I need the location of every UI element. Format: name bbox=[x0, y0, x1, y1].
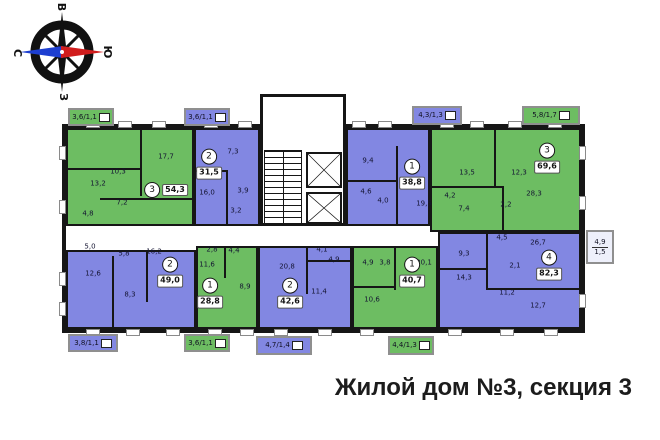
room-area-label: 2,1 bbox=[509, 263, 520, 270]
interior-wall bbox=[352, 286, 396, 288]
room-area-label: 3,2 bbox=[230, 208, 241, 215]
apartment-label: 140,7 bbox=[399, 257, 425, 288]
room-area-label: 4,9 bbox=[328, 257, 339, 264]
window-opening bbox=[508, 121, 522, 128]
window-opening bbox=[59, 302, 66, 316]
room-area-label: 9,3 bbox=[458, 251, 469, 258]
apartment-label: 231,5 bbox=[196, 149, 222, 180]
interior-wall bbox=[112, 256, 114, 329]
room-area-label: 17,7 bbox=[158, 154, 174, 161]
room-area-label: 19,5 bbox=[416, 201, 432, 208]
balcony: 4,4/1,3 bbox=[388, 336, 434, 355]
room-area-label: 4,6 bbox=[360, 189, 371, 196]
staircase bbox=[264, 150, 302, 224]
balcony-area-label: 4,4/1,3 bbox=[392, 342, 417, 349]
balcony-area-label: 3,8/1,1 bbox=[74, 340, 99, 347]
apartment-label: 249,0 bbox=[157, 257, 183, 288]
compass-rose-icon: В С Ю З bbox=[12, 2, 112, 102]
apartment-total-area: 31,5 bbox=[196, 167, 222, 180]
window-opening bbox=[579, 294, 586, 308]
apartment-label: 128,8 bbox=[197, 278, 223, 309]
room-area-label: 12,7 bbox=[530, 303, 546, 310]
apartment-rooms-badge: 1 bbox=[404, 159, 420, 175]
window-opening bbox=[59, 272, 66, 286]
window-opening bbox=[118, 121, 132, 128]
apartment-total-area: 69,6 bbox=[534, 161, 560, 174]
room-area-label: 5,0 bbox=[84, 244, 95, 251]
balcony-area-label: 4,7/1,4 bbox=[265, 342, 290, 349]
room-area-label: 2,2 bbox=[500, 202, 511, 209]
balcony-area-label: 4,3/1,3 bbox=[418, 112, 443, 119]
balcony: 3,6/1,1 bbox=[184, 108, 230, 126]
apartment-total-area: 38,8 bbox=[399, 177, 425, 190]
room-area-label: 4,4 bbox=[228, 248, 239, 255]
compass-needle-red bbox=[61, 46, 104, 58]
window-opening bbox=[579, 146, 586, 160]
room-area-label: 20,8 bbox=[279, 264, 295, 271]
room-area-label: 7,4 bbox=[458, 206, 469, 213]
room-area-label: 16,0 bbox=[199, 190, 215, 197]
compass-label-right: Ю bbox=[101, 46, 112, 59]
balcony-window-icon bbox=[559, 111, 570, 120]
plan-title: Жилой дом №3, секция 3 bbox=[335, 374, 632, 402]
compass-label-bottom: З bbox=[57, 93, 70, 101]
window-opening bbox=[274, 329, 288, 336]
apartment-label: 354,3 bbox=[144, 182, 188, 198]
room-area-label: 4,1 bbox=[316, 247, 327, 254]
room-area-label: 12,6 bbox=[85, 271, 101, 278]
interior-wall bbox=[396, 146, 398, 226]
balcony-window-icon bbox=[101, 339, 112, 348]
window-opening bbox=[579, 196, 586, 210]
apartment-rooms-badge: 4 bbox=[541, 250, 557, 266]
balcony-side: 4,91,5 bbox=[586, 230, 614, 264]
apartment-label: 482,3 bbox=[536, 250, 562, 281]
balcony-area-label: 3,6/1,1 bbox=[188, 114, 213, 121]
balcony: 4,3/1,3 bbox=[412, 106, 462, 125]
balcony: 3,8/1,1 bbox=[68, 334, 118, 352]
balcony-window-icon bbox=[419, 341, 430, 350]
room-area-label: 3,8 bbox=[379, 260, 390, 267]
apartment-rooms-badge: 3 bbox=[144, 182, 160, 198]
apartment-rooms-badge: 1 bbox=[404, 257, 420, 273]
apartment-total-area: 40,7 bbox=[399, 275, 425, 288]
interior-wall bbox=[486, 232, 488, 290]
room-area-label: 2,8 bbox=[206, 247, 217, 254]
interior-wall bbox=[224, 246, 226, 278]
compass-center-dot bbox=[60, 50, 64, 54]
compass-south-point bbox=[58, 52, 66, 92]
room-area-label: 9,4 bbox=[362, 158, 373, 165]
window-opening bbox=[352, 121, 366, 128]
window-opening bbox=[448, 329, 462, 336]
room-area-label: 4,5 bbox=[496, 235, 507, 242]
room-area-label: 16,2 bbox=[146, 249, 162, 256]
balcony: 4,7/1,4 bbox=[256, 336, 312, 355]
window-opening bbox=[378, 121, 392, 128]
room-area-label: 26,7 bbox=[530, 240, 546, 247]
balcony-area-label: 5,8/1,7 bbox=[532, 112, 557, 119]
room-area-label: 12,3 bbox=[511, 170, 527, 177]
window-opening bbox=[59, 146, 66, 160]
balcony-area-bottom: 1,5 bbox=[594, 248, 605, 256]
balcony: 5,8/1,7 bbox=[522, 106, 580, 125]
room-area-label: 10,6 bbox=[364, 297, 380, 304]
apartment-label: 242,6 bbox=[277, 278, 303, 309]
elevator-shaft bbox=[306, 192, 342, 224]
balcony: 3,6/1,1 bbox=[184, 334, 230, 352]
room-area-label: 28,3 bbox=[526, 191, 542, 198]
window-opening bbox=[166, 329, 180, 336]
balcony: 3,6/1,1 bbox=[68, 108, 114, 126]
interior-wall bbox=[430, 186, 504, 188]
apartment-label: 369,6 bbox=[534, 143, 560, 174]
apartment-total-area: 42,6 bbox=[277, 296, 303, 309]
balcony-area-label: 3,6/1,1 bbox=[188, 340, 213, 347]
interior-wall bbox=[306, 246, 308, 294]
room-area-label: 5,8 bbox=[118, 251, 129, 258]
compass-north-point bbox=[58, 12, 66, 52]
window-opening bbox=[360, 329, 374, 336]
room-area-label: 11,2 bbox=[499, 290, 515, 297]
balcony-window-icon bbox=[292, 341, 303, 350]
room-area-label: 4,0 bbox=[377, 198, 388, 205]
room-area-label: 3,9 bbox=[237, 188, 248, 195]
interior-wall bbox=[146, 250, 148, 302]
room-area-label: 13,5 bbox=[459, 170, 475, 177]
window-opening bbox=[126, 329, 140, 336]
apartment-rooms-badge: 2 bbox=[282, 278, 298, 294]
balcony-window-icon bbox=[215, 113, 226, 122]
interior-wall bbox=[346, 180, 398, 182]
interior-wall bbox=[502, 186, 504, 232]
apartment-total-area: 28,8 bbox=[197, 296, 223, 309]
balcony-window-icon bbox=[215, 339, 226, 348]
room-area-label: 13,2 bbox=[90, 181, 106, 188]
window-opening bbox=[59, 200, 66, 214]
balcony-area-fraction: 4,91,5 bbox=[592, 238, 607, 256]
room-area-label: 10,3 bbox=[110, 169, 126, 176]
elevator-shaft bbox=[306, 152, 342, 188]
interior-wall bbox=[140, 128, 142, 196]
compass-label-left: С bbox=[12, 49, 24, 57]
balcony-area-top: 4,9 bbox=[592, 238, 607, 247]
interior-wall bbox=[66, 168, 141, 170]
apartment-rooms-badge: 2 bbox=[162, 257, 178, 273]
room-area-label: 4,2 bbox=[444, 193, 455, 200]
interior-wall bbox=[438, 268, 488, 270]
apartment-rooms-badge: 1 bbox=[202, 278, 218, 294]
balcony-window-icon bbox=[99, 113, 110, 122]
room-area-label: 14,3 bbox=[456, 275, 472, 282]
room-area-label: 7,2 bbox=[116, 200, 127, 207]
interior-wall bbox=[100, 198, 194, 200]
window-opening bbox=[544, 329, 558, 336]
window-opening bbox=[240, 329, 254, 336]
room-area-label: 7,3 bbox=[227, 149, 238, 156]
window-opening bbox=[238, 121, 252, 128]
window-opening bbox=[318, 329, 332, 336]
apartment-total-area: 49,0 bbox=[157, 275, 183, 288]
room-area-label: 11,6 bbox=[199, 262, 215, 269]
room-area-label: 4,9 bbox=[362, 260, 373, 267]
apartment-total-area: 82,3 bbox=[536, 268, 562, 281]
room-area-label: 8,3 bbox=[124, 292, 135, 299]
compass-needle-blue bbox=[20, 46, 63, 58]
apartment-rooms-badge: 3 bbox=[539, 143, 555, 159]
room-area-label: 4,8 bbox=[82, 211, 93, 218]
apartment-label: 138,8 bbox=[399, 159, 425, 190]
interior-wall bbox=[394, 246, 396, 290]
interior-wall bbox=[226, 170, 228, 226]
balcony-area-label: 3,6/1,1 bbox=[72, 114, 97, 121]
window-opening bbox=[470, 121, 484, 128]
room-area-label: 11,4 bbox=[311, 289, 327, 296]
apartment-total-area: 54,3 bbox=[162, 184, 188, 197]
interior-wall bbox=[494, 128, 496, 186]
balcony-window-icon bbox=[445, 111, 456, 120]
compass-label-top: В bbox=[55, 3, 68, 11]
window-opening bbox=[152, 121, 166, 128]
window-opening bbox=[500, 329, 514, 336]
room-area-label: 8,9 bbox=[239, 284, 250, 291]
apartment-rooms-badge: 2 bbox=[201, 149, 217, 165]
